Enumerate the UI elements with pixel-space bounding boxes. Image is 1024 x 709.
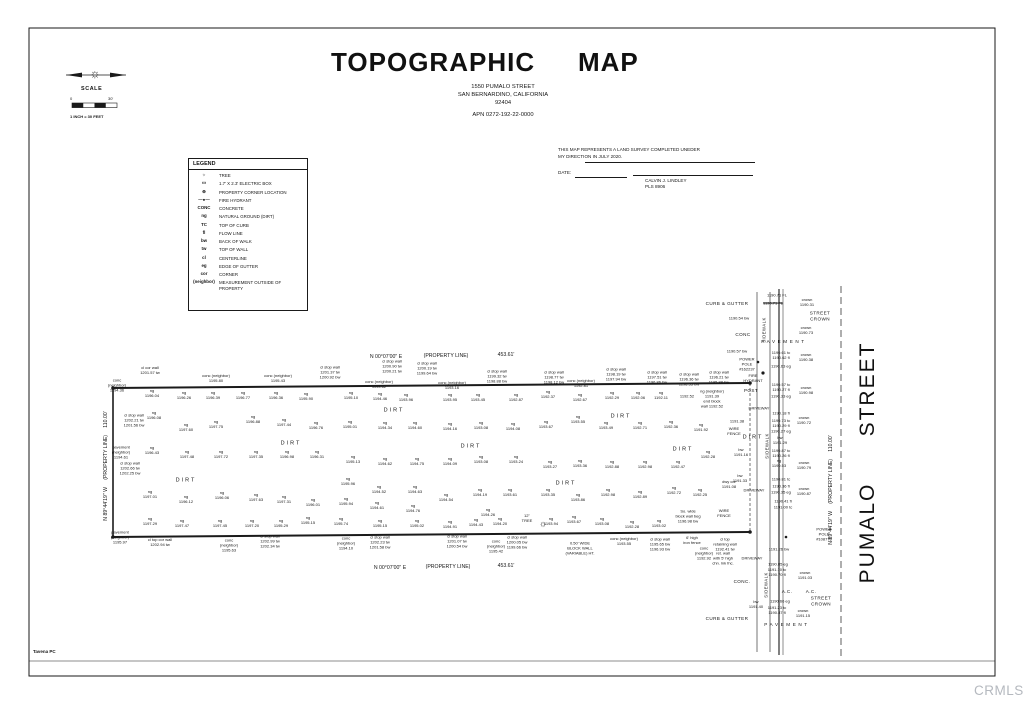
map-annotation: 453.61' bbox=[498, 563, 515, 569]
map-annotation: ng 1193.45 bbox=[471, 393, 485, 403]
map-annotation: ng 1193.35 bbox=[541, 488, 555, 498]
map-annotation: bw 1191.29 bbox=[773, 436, 787, 446]
map-annotation: 12" TREE bbox=[522, 514, 533, 524]
street-name: STREET bbox=[855, 342, 881, 437]
map-annotation: ng 1192.11 bbox=[654, 391, 668, 401]
map-annotation: cl stop wall 1196.36 tw 1196.33 bw bbox=[679, 373, 699, 388]
map-annotation: ng 1197.01 bbox=[143, 490, 157, 500]
crmls-watermark: CRMLS bbox=[974, 683, 1024, 698]
map-annotation: crown 1190.73 bbox=[799, 326, 813, 336]
map-annotation: ng 1193.67 bbox=[539, 420, 553, 430]
map-annotation: conc (neighbor) 1193.62 bbox=[365, 380, 393, 390]
map-annotation: ng 1195.96 bbox=[341, 477, 355, 487]
map-annotation: ng 1196.01 bbox=[306, 498, 320, 508]
map-annotation: ng 1196.77 bbox=[236, 391, 250, 401]
map-annotation: 453.61' bbox=[498, 352, 515, 358]
preparer-credit: Tavena PC bbox=[33, 649, 56, 654]
map-annotation: ng 1197.48 bbox=[180, 450, 194, 460]
map-annotation: ng 1194.75 bbox=[410, 457, 424, 467]
map-annotation: ng 1192.29 bbox=[605, 391, 619, 401]
map-annotation: ng 1195.01 bbox=[343, 420, 357, 430]
map-annotation: ng 1197.60 bbox=[179, 423, 193, 433]
map-annotation: PAVEMENT bbox=[764, 622, 809, 628]
map-annotation: crown 1190.79 bbox=[797, 461, 811, 471]
map-annotation: ng 1193.27 bbox=[543, 460, 557, 470]
map-annotation: ng 1193.94 bbox=[544, 517, 558, 527]
map-annotation: 1190.71 FL bbox=[763, 302, 783, 307]
map-annotation: 6' high iron fence bbox=[683, 536, 701, 546]
map-annotation: ng 1197.75 bbox=[209, 420, 223, 430]
map-annotation: ng 1194.60 bbox=[408, 421, 422, 431]
map-annotation: 1190.66 eg bbox=[770, 600, 790, 605]
map-annotation: 1190.71 FL bbox=[767, 294, 787, 299]
map-annotation: cl stop wall 1197.51 tw 1196.86 bw bbox=[647, 371, 667, 386]
map-annotation: 1190.57 bw bbox=[727, 350, 747, 355]
map-annotation: cl stop wall 1199.32 tw 1198.88 bw bbox=[487, 370, 507, 385]
map-annotation: 0.50' WIDE BLOCK WALL (VARIABLE) HT. bbox=[565, 542, 594, 557]
map-annotation: conc (neighbor) 1195.63 bbox=[220, 539, 238, 554]
map-annotation: ng 1192.25 bbox=[693, 488, 707, 498]
map-annotation: DIRT bbox=[743, 435, 764, 442]
map-annotation: ng 1190.53 bbox=[772, 459, 786, 469]
map-annotation: conc (neighbor) 1195.43 bbox=[264, 374, 292, 384]
map-annotation: crown 1190.87 bbox=[797, 487, 811, 497]
map-annotation: cl cor wall 1201.57 tw bbox=[140, 366, 160, 376]
map-annotation: ng 1194.20 bbox=[493, 517, 507, 527]
map-annotation: crown 1190.38 bbox=[799, 353, 813, 363]
map-annotation: ng 1195.90 bbox=[299, 392, 313, 402]
map-annotation: ng 1196.98 bbox=[280, 450, 294, 460]
map-annotation: ng 1192.06 bbox=[631, 391, 645, 401]
map-annotation: ng 1196.88 bbox=[246, 415, 260, 425]
map-annotation: DIRT bbox=[461, 444, 482, 451]
map-annotation: ng 1197.35 bbox=[249, 450, 263, 460]
map-annotation: ng 1194.34 bbox=[378, 421, 392, 431]
map-annotation: A.C. bbox=[806, 589, 817, 595]
map-annotation: cl top cor wall 1202.94 tw bbox=[148, 538, 172, 548]
map-annotation: ng 1193.24 bbox=[509, 455, 523, 465]
map-annotation: ng 1194.52 bbox=[372, 485, 386, 495]
map-annotation: ng 1194.62 bbox=[378, 457, 392, 467]
map-annotation: ng 1197.31 bbox=[277, 495, 291, 505]
map-annotation: ng 1195.15 bbox=[301, 516, 315, 526]
map-annotation: 1190.63 eg bbox=[771, 365, 791, 370]
map-annotation: ng 1196.06 bbox=[215, 491, 229, 501]
map-annotation: ng 1193.08 bbox=[595, 517, 609, 527]
map-annotation: POWER POLE #162237 bbox=[739, 358, 755, 373]
map-annotation: cl stop wall 1202.21 tw 1201.56 bw bbox=[124, 414, 145, 429]
map-annotation: ng 1197.29 bbox=[143, 517, 157, 527]
map-annotation: (PROPERTY LINE) bbox=[426, 564, 471, 570]
map-annotation: CONC bbox=[735, 332, 750, 338]
map-annotation: DIRT bbox=[176, 478, 197, 485]
map-annotation: ng 1195.02 bbox=[410, 519, 424, 529]
map-annotation: ng 1194.63 bbox=[408, 485, 422, 495]
map-annotation: 1190.81 tc bbox=[772, 478, 790, 483]
map-annotation: ng 1196.12 bbox=[179, 495, 193, 505]
map-annotation: ng 1193.61 bbox=[503, 488, 517, 498]
map-annotation: ng 1193.02 bbox=[652, 519, 666, 529]
map-annotation: ng 1197.47 bbox=[175, 519, 189, 529]
map-annotation: ng 1194.43 bbox=[469, 518, 483, 528]
map-annotation: ng 1192.89 bbox=[633, 490, 647, 500]
map-annotation: ng 1194.16 bbox=[443, 422, 457, 432]
map-annotation: conc (neighbor) 1195.80 bbox=[202, 374, 230, 384]
map-annotation: STREET CROWN bbox=[810, 310, 831, 321]
map-annotation: DRIVEWAY bbox=[744, 489, 765, 494]
map-annotation: 1190.54 bw bbox=[729, 317, 749, 322]
map-annotation: ng 1194.09 bbox=[443, 457, 457, 467]
map-annotation: POWER POLE #108776 bbox=[816, 528, 832, 543]
map-annotation: 1191.26 bw bbox=[769, 548, 789, 553]
map-annotation: ng 1192.47 bbox=[671, 460, 685, 470]
map-annotation: dwy cor 1191.08 bbox=[722, 480, 736, 490]
map-annotation: ng 1192.72 bbox=[667, 486, 681, 496]
map-annotation: ng 1196.26 bbox=[177, 391, 191, 401]
map-annotation: DRIVEWAY bbox=[742, 557, 763, 562]
map-annotation: 1191.38 bbox=[730, 420, 744, 425]
map-annotation: cl stop wall 1201.07 tw 1200.54 bw bbox=[447, 535, 468, 550]
map-annotation: ng 1196.76 bbox=[309, 421, 323, 431]
map-annotation: ng 1196.36 bbox=[269, 391, 283, 401]
map-annotation: conc (neighbor) 1193.55 bbox=[610, 537, 638, 547]
map-annotation: ng 1194.76 bbox=[406, 504, 420, 514]
map-annotation: ng 1195.94 bbox=[339, 497, 353, 507]
map-annotation: 1192.52 bbox=[680, 395, 694, 400]
map-annotation: ng 1192.37 bbox=[541, 390, 555, 400]
map-annotation: 1190.27 eg bbox=[771, 430, 791, 435]
map-annotation: ng 1193.96 bbox=[399, 393, 413, 403]
map-annotation: 1191.10 tc 1190.70 fl bbox=[768, 568, 786, 578]
map-annotation: ng 1192.36 bbox=[664, 420, 678, 430]
map-annotation: CONC. bbox=[734, 579, 751, 585]
map-annotation: ng 1194.91 bbox=[443, 520, 457, 530]
map-annotation: DIRT bbox=[384, 408, 405, 415]
map-annotation: conc (neighbor) 1192.92 bbox=[695, 547, 713, 562]
map-annotation: ng 1192.87 bbox=[509, 393, 523, 403]
map-annotation: ng 1197.20 bbox=[245, 519, 259, 529]
map-annotation: DIRT bbox=[673, 447, 694, 454]
map-annotation: cl stop wall 1202.66 tw 1202.25 bw bbox=[120, 462, 141, 477]
map-annotation: 1190.18 fl bbox=[772, 412, 789, 417]
map-annotation: DIRT bbox=[611, 414, 632, 421]
map-annotation: crown 1190.72 bbox=[797, 416, 811, 426]
map-annotation: ng 1192.28 bbox=[625, 520, 639, 530]
map-annotation: 1190.87 tc 1190.26 fl bbox=[772, 449, 790, 459]
map-annotation: ng 1192.98 bbox=[638, 460, 652, 470]
map-annotation: ng 1194.19 bbox=[473, 488, 487, 498]
map-annotation: ng 1196.31 bbox=[310, 450, 324, 460]
map-annotation: ng 1194.46 bbox=[373, 392, 387, 402]
map-annotation: cl stop wall 1200.90 tw 1200.21 tw bbox=[382, 360, 402, 375]
map-annotation: 1190.33 eg bbox=[771, 395, 791, 400]
map-annotation: SIDEWALK bbox=[764, 433, 769, 459]
map-annotation: PAVEMENT bbox=[761, 339, 806, 345]
map-annotation: bw 1191.16 bbox=[734, 448, 748, 458]
map-annotation: conc (neighbor) 1194.36 bbox=[108, 379, 126, 394]
map-annotation: CURB & GUTTER bbox=[706, 301, 749, 307]
map-annotation: WIRE FENCE bbox=[727, 427, 741, 437]
map-annotation: ng 1195.29 bbox=[274, 519, 288, 529]
map-annotation: ng (neighbor) 1191.39 end block wall 119… bbox=[700, 389, 724, 409]
map-annotation: STREET CROWN bbox=[811, 595, 832, 606]
map-annotation: ng 1195.15 bbox=[373, 519, 387, 529]
map-annotation: cl stop wall 1200.05 bw 1199.66 bw bbox=[507, 536, 528, 551]
map-annotation: cl stop wall 1195.65 bw 1196.93 bw bbox=[650, 538, 670, 553]
map-annotation: ng 1196.04 bbox=[145, 389, 159, 399]
map-annotation: ng 1192.67 bbox=[573, 393, 587, 403]
map-annotation: So. wide block wall beg 1196.98 bw bbox=[675, 510, 700, 525]
map-annotation: ng 1193.36 bbox=[573, 459, 587, 469]
map-annotation: conc (neighbor) 1194.10 bbox=[337, 537, 355, 552]
map-annotation: ng 1194.61 bbox=[370, 501, 384, 511]
map-annotation: conc (neighbor) 1192.81 bbox=[567, 379, 595, 389]
map-annotation: ng 1197.45 bbox=[213, 519, 227, 529]
map-annotation: SIDEWALK bbox=[761, 317, 766, 343]
map-annotation: conc (neighbor) 1195.42 bbox=[487, 540, 505, 555]
map-annotation: ng 1193.49 bbox=[599, 421, 613, 431]
map-annotation: cl stop wall 1200.19 tw 1199.64 bw bbox=[417, 362, 437, 377]
map-annotation: DIRT bbox=[556, 481, 577, 488]
map-annotation: cl stop wall 1196.21 tw 1195.88 bw bbox=[709, 371, 729, 386]
map-annotation: 1191.23 tc 1190.87 fl bbox=[768, 606, 786, 616]
map-annotation: cl stop wall 1202.23 tw 1201.58 bw bbox=[370, 536, 391, 551]
map-annotation: ng 1193.67 bbox=[567, 515, 581, 525]
map-annotation: ng 1197.72 bbox=[214, 450, 228, 460]
map-annotation: crown 1190.98 bbox=[799, 386, 813, 396]
map-annotation: A.C. bbox=[782, 589, 793, 595]
map-annotation: ng 1192.88 bbox=[605, 460, 619, 470]
map-annotation: 1190.61 tc 1190.62 fl bbox=[772, 351, 790, 361]
map-annotation: 1190.35 eg bbox=[771, 491, 791, 496]
map-annotation: ng 1194.54 bbox=[439, 493, 453, 503]
map-annotation: WIRE FENCE bbox=[717, 509, 731, 519]
map-annotation: cl stop wall 1202.99 tw 1202.34 tw bbox=[260, 535, 280, 550]
map-annotation: 1190.73 tc 1190.29 fl bbox=[772, 419, 790, 429]
map-annotation: ng 1193.86 bbox=[571, 493, 585, 503]
map-annotation: crown 1190.31 bbox=[800, 298, 814, 308]
map-annotation: cl stop wall 1198.19 tw 1197.94 bw bbox=[606, 368, 626, 383]
map-annotation: ng 1192.71 bbox=[633, 421, 647, 431]
map-annotation: ng 1196.39 bbox=[206, 391, 220, 401]
survey-sheet: TOPOGRAPHIC MAP 1550 PUMALO STREET SAN B… bbox=[0, 0, 1024, 709]
map-annotation: N 89°44'19" W (PROPERTY LINE) 110.00' bbox=[103, 411, 109, 520]
map-annotation: ng 1197.63 bbox=[249, 493, 263, 503]
map-annotation: crown 1191.15 bbox=[796, 609, 810, 619]
map-annotation: ng 1196.08 bbox=[147, 411, 161, 421]
map-annotation: ng 1197.44 bbox=[277, 418, 291, 428]
map-annotation: ng 1194.08 bbox=[506, 422, 520, 432]
map-annotation: 1190.57 tc 1190.27 fl bbox=[772, 383, 790, 393]
map-annotation: ret. wall with 5' high chn. lnk fnc. bbox=[712, 552, 733, 567]
street-name: PUMALO bbox=[855, 483, 881, 584]
map-annotation: ng 1195.10 bbox=[344, 391, 358, 401]
map-annotation: cl stop wall 1201.37 tw 1200.92 bw bbox=[320, 366, 341, 381]
map-annotation: crown 1191.03 bbox=[798, 571, 812, 581]
map-annotation: ng 1193.95 bbox=[443, 393, 457, 403]
map-annotation: ng 1195.74 bbox=[334, 517, 348, 527]
compass-star-icon: ☼ bbox=[90, 67, 101, 82]
map-annotation: FIRE HYDRANT bbox=[743, 374, 762, 384]
map-annotation: ng 1193.55 bbox=[571, 415, 585, 425]
map-annotation: ng 1195.13 bbox=[346, 455, 360, 465]
map-annotation: cl stop wall 1198.77 tw 1198.12 bw bbox=[544, 371, 564, 386]
map-annotation: CURB & GUTTER bbox=[706, 616, 749, 622]
annotation-layer: N 00°07'00" E(PROPERTY LINE)453.61'N 00°… bbox=[0, 0, 1024, 709]
map-annotation: DRIVEWAY bbox=[749, 407, 770, 412]
map-annotation: ng 1192.28 bbox=[701, 450, 715, 460]
map-annotation: ng 1193.08 bbox=[474, 421, 488, 431]
map-annotation: N 00°07'00" E bbox=[374, 565, 406, 571]
map-annotation: ng 1196.43 bbox=[145, 446, 159, 456]
map-annotation: pavement (neighbor) 1195.97 bbox=[111, 531, 129, 546]
map-annotation: 1191.00 tc bbox=[774, 506, 792, 511]
map-annotation: pavement (neighbor) 1194.61 bbox=[112, 446, 130, 461]
map-annotation: (PROPERTY LINE) bbox=[424, 353, 469, 359]
map-annotation: ng 1193.08 bbox=[474, 455, 488, 465]
map-annotation: POST bbox=[744, 388, 758, 394]
map-annotation: DIRT bbox=[281, 441, 302, 448]
map-annotation: ng 1191.92 bbox=[694, 423, 708, 433]
map-annotation: ng 1192.98 bbox=[601, 488, 615, 498]
map-annotation: bw 1191.40 bbox=[749, 600, 763, 610]
map-annotation: conc (neighbor) 1193.16 bbox=[438, 381, 466, 391]
